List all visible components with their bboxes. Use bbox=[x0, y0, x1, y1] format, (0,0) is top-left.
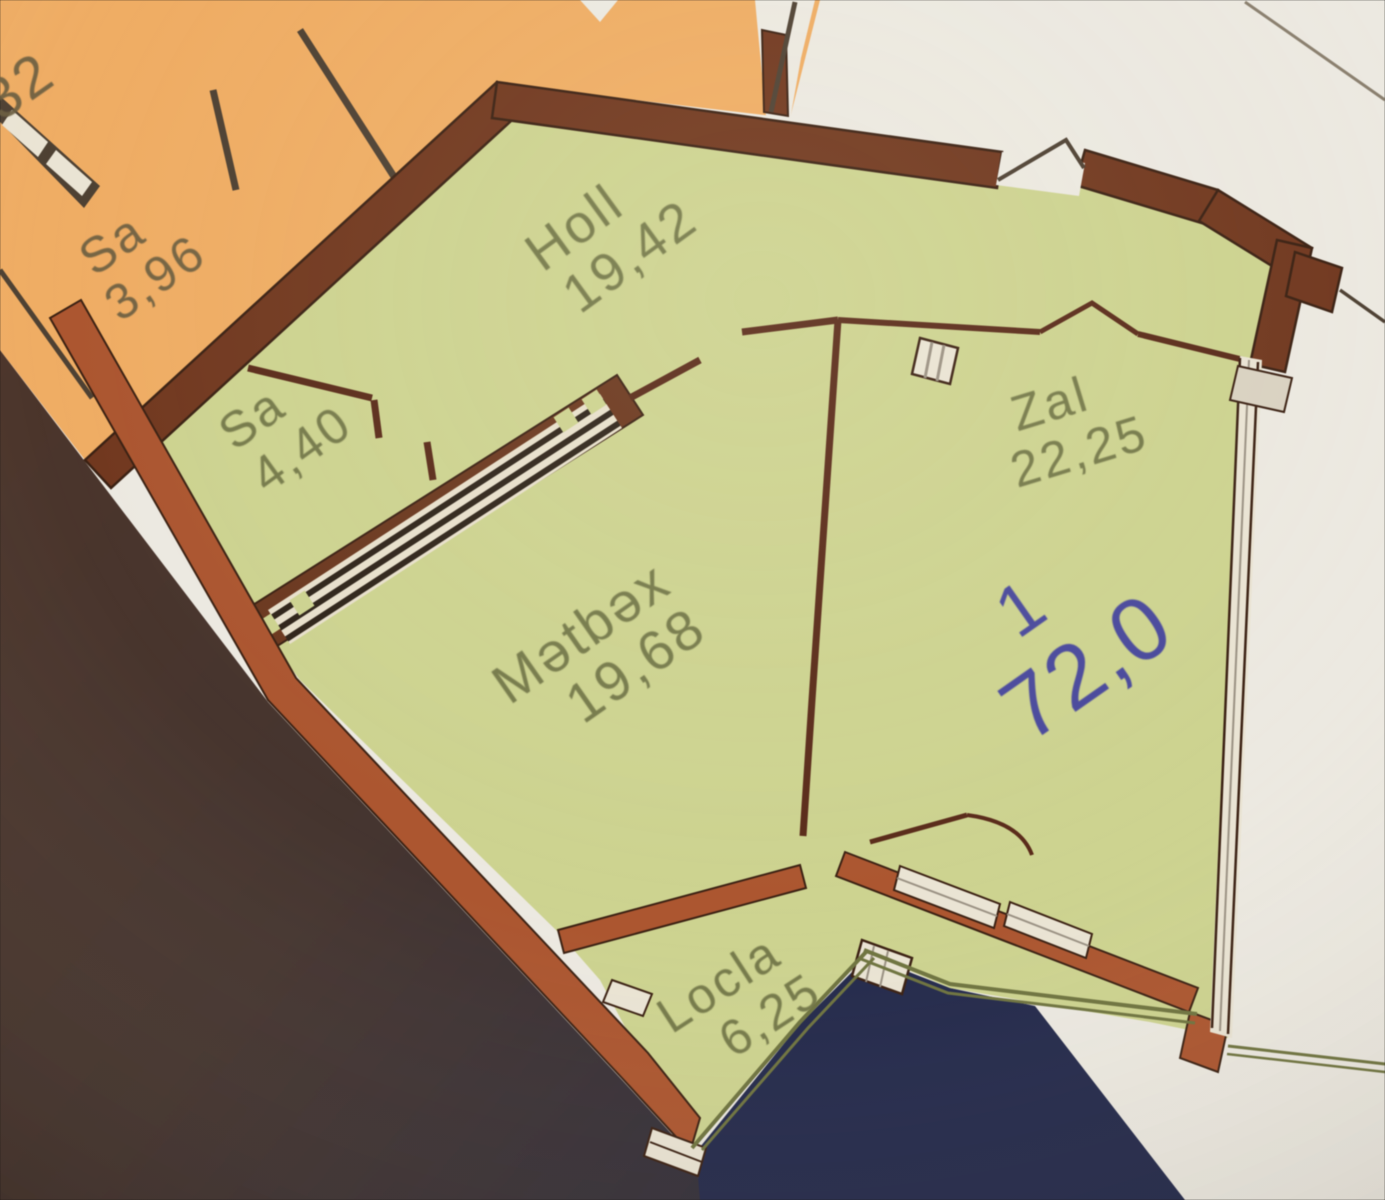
floor-plan-canvas: Holl 19,42 Sa 4,40 Mətbəx 19,68 Zal 22,2… bbox=[0, 0, 1385, 1200]
photo-lighting-overlay bbox=[0, 0, 1385, 1200]
floor-plan-photo: Holl 19,42 Sa 4,40 Mətbəx 19,68 Zal 22,2… bbox=[0, 0, 1385, 1200]
